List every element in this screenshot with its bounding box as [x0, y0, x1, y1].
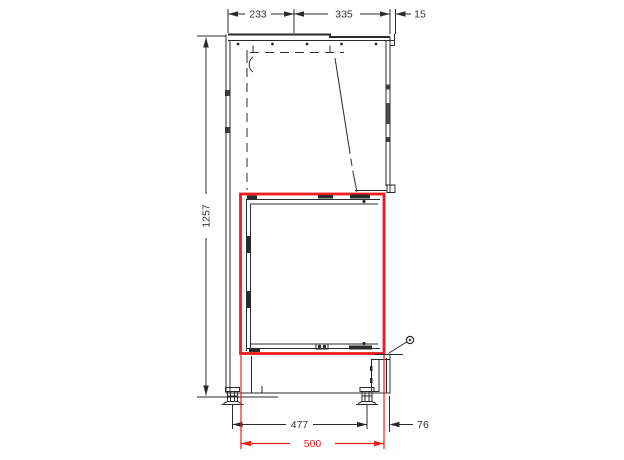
door-hinge-lower: [246, 291, 251, 308]
door-handle: [374, 336, 414, 354]
opening-width-dimension: 500: [241, 355, 384, 450]
handle-lever: [389, 342, 408, 354]
technical-drawing-page: 233 335 15 1257: [0, 0, 624, 460]
dim-top-right-label: 335: [335, 9, 353, 21]
dim-top-left-label: 233: [249, 9, 267, 21]
height-dimension-group: 1257: [197, 36, 226, 396]
feet-spacing-dimension: 477: [233, 419, 368, 431]
right-overhang-dimension: 76: [390, 396, 429, 432]
top-plate: [228, 34, 395, 72]
dim-height-label: 1257: [201, 204, 213, 228]
dim-opening-width-label: 500: [304, 438, 322, 450]
door-hinge-upper: [246, 236, 251, 253]
door-frame: [246, 195, 380, 353]
glass-door-highlight: [241, 194, 385, 354]
dim-feet-spacing-label: 477: [291, 419, 309, 431]
dim-top-offset-label: 15: [414, 9, 426, 21]
fireplace-section-drawing: 233 335 15 1257: [0, 0, 624, 460]
dim-right-overhang-label: 76: [417, 419, 429, 431]
top-dimension-group: 233 335 15: [228, 9, 426, 34]
top-plate-screws: [237, 43, 378, 46]
